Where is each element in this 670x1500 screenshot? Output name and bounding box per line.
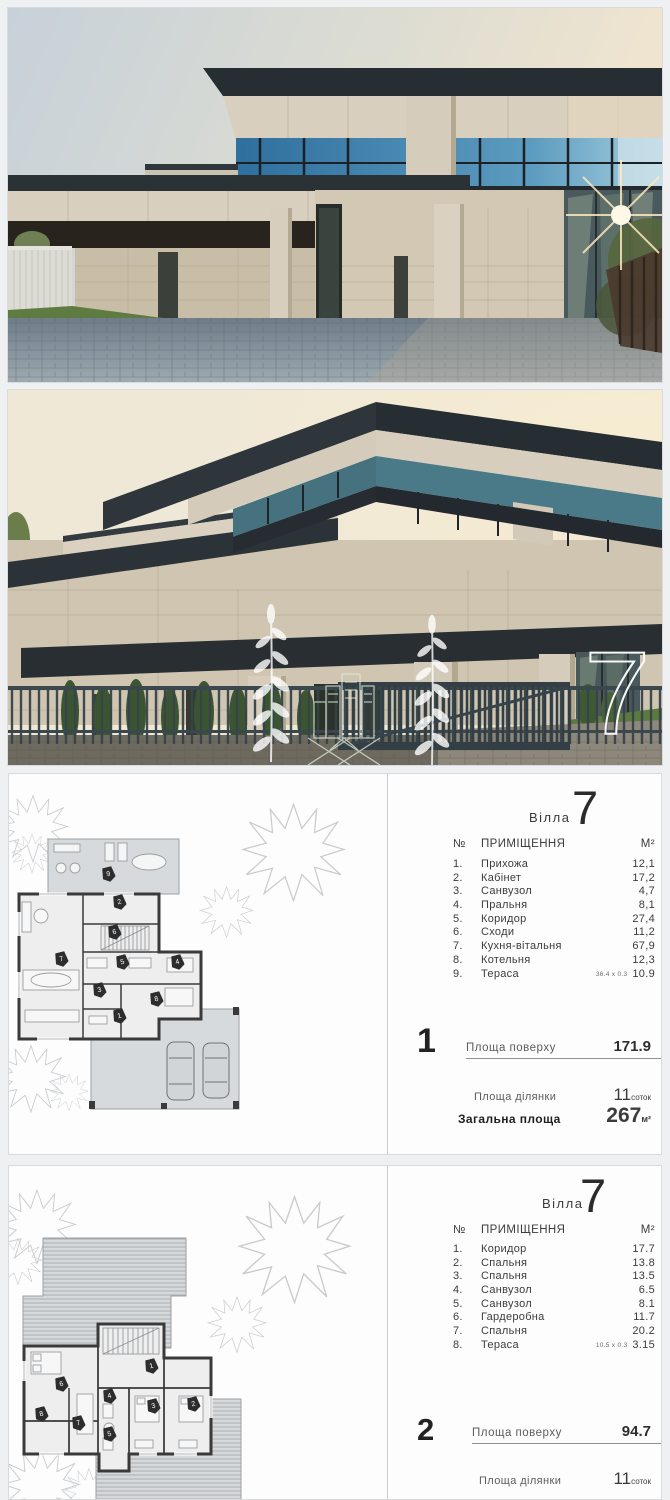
floor-area-label: Площа поверху bbox=[472, 1427, 562, 1439]
plot-area-value: 11соток bbox=[613, 1469, 651, 1489]
room-area: 8.1 bbox=[639, 1298, 655, 1312]
room-no: 6. bbox=[453, 926, 481, 940]
floor-area-label: Площа поверху bbox=[466, 1042, 556, 1054]
plot-area-label: Площа ділянки bbox=[474, 1091, 556, 1103]
room-no: 8. bbox=[453, 1339, 481, 1353]
room-name: Кабінет bbox=[481, 872, 632, 886]
room-area: 12,3 bbox=[632, 954, 655, 968]
table-row: 5.Коридор27,4 bbox=[453, 913, 655, 927]
room-name: Санвузол bbox=[481, 1298, 639, 1312]
villa-label: Вілла bbox=[542, 1196, 583, 1211]
room-name: Сходи bbox=[481, 926, 633, 940]
page-divider bbox=[387, 1166, 388, 1499]
listing-page: 7 bbox=[0, 0, 670, 1500]
total-unit: м² bbox=[641, 1114, 651, 1124]
room-name: Тераса bbox=[481, 1339, 596, 1353]
plot-unit: соток bbox=[631, 1093, 651, 1102]
col-no: № bbox=[453, 1224, 481, 1236]
room-table: 1.Прихожа12,1 2.Кабінет17,2 3.Санвузол4,… bbox=[453, 858, 655, 981]
table-row: 7.Спальня20.2 bbox=[453, 1325, 655, 1339]
total-number: 267 bbox=[606, 1104, 641, 1127]
plot-area-label: Площа ділянки bbox=[479, 1475, 561, 1487]
room-area: 13.5 bbox=[632, 1270, 655, 1284]
total-area-value: 267м² bbox=[606, 1104, 651, 1128]
room-area: 67,9 bbox=[632, 940, 655, 954]
villa-number: 7 bbox=[572, 784, 598, 831]
room-name: Кухня-вітальня bbox=[481, 940, 632, 954]
room-no: 6. bbox=[453, 1311, 481, 1325]
table-row: 9.Тераса36.4 х 0.310.9 bbox=[453, 968, 655, 982]
underline bbox=[472, 1443, 661, 1444]
room-table-header: № ПРИМІЩЕННЯ М² bbox=[453, 838, 655, 850]
terrace-dimensions-note: 10.5 х 0.3 bbox=[596, 1339, 628, 1353]
room-name: Спальня bbox=[481, 1257, 632, 1271]
table-row: 8.Тераса10.5 х 0.33.15 bbox=[453, 1339, 655, 1353]
room-no: 8. bbox=[453, 954, 481, 968]
room-area: 27,4 bbox=[632, 913, 655, 927]
floor-area-value: 94.7 bbox=[622, 1423, 651, 1440]
floor-plan-page-1[interactable]: 9 2 6 7 5 4 3 8 1 Вілла 7 № ПРИМІЩЕННЯ М… bbox=[8, 773, 662, 1155]
col-no: № bbox=[453, 838, 481, 850]
plot-area-value: 11соток bbox=[613, 1085, 651, 1105]
room-no: 7. bbox=[453, 1325, 481, 1339]
room-area: 4,7 bbox=[639, 885, 655, 899]
table-row: 1.Коридор17.7 bbox=[453, 1243, 655, 1257]
room-no: 1. bbox=[453, 1243, 481, 1257]
floor-plan-1-drawing bbox=[9, 774, 387, 1155]
col-area: М² bbox=[641, 1224, 655, 1236]
room-no: 3. bbox=[453, 885, 481, 899]
room-name: Санвузол bbox=[481, 1284, 639, 1298]
room-no: 2. bbox=[453, 872, 481, 886]
room-area: 11,2 bbox=[633, 926, 655, 940]
villa-label: Вілла bbox=[529, 810, 570, 825]
room-name: Котельня bbox=[481, 954, 632, 968]
table-row: 4.Санвузол6.5 bbox=[453, 1284, 655, 1298]
room-area: 13.8 bbox=[632, 1257, 655, 1271]
room-name: Коридор bbox=[481, 1243, 632, 1257]
table-row: 5.Санвузол8.1 bbox=[453, 1298, 655, 1312]
room-no: 4. bbox=[453, 899, 481, 913]
room-area: 17.7 bbox=[632, 1243, 655, 1257]
room-name: Пральня bbox=[481, 899, 639, 913]
exterior-photo-corner[interactable]: 7 bbox=[8, 390, 662, 765]
table-row: 6.Сходи11,2 bbox=[453, 926, 655, 940]
room-table: 1.Коридор17.7 2.Спальня13.8 3.Спальня13.… bbox=[453, 1243, 655, 1353]
room-no: 5. bbox=[453, 1298, 481, 1312]
room-area: 6.5 bbox=[639, 1284, 655, 1298]
room-name: Прихожа bbox=[481, 858, 632, 872]
villa-number: 7 bbox=[580, 1172, 606, 1219]
room-area: 8,1 bbox=[639, 899, 655, 913]
col-room: ПРИМІЩЕННЯ bbox=[481, 838, 641, 850]
room-area: 11.7 bbox=[633, 1311, 655, 1325]
table-row: 6.Гардеробна11.7 bbox=[453, 1311, 655, 1325]
floor-area-value: 171.9 bbox=[613, 1038, 651, 1055]
room-name: Спальня bbox=[481, 1270, 632, 1284]
terrace-dimensions-note: 36.4 х 0.3 bbox=[596, 968, 628, 982]
room-area: 3.15 bbox=[632, 1339, 655, 1353]
exterior-photo-corner-image: 7 bbox=[8, 390, 662, 765]
col-room: ПРИМІЩЕННЯ bbox=[481, 1224, 641, 1236]
exterior-photo-front-image bbox=[8, 8, 662, 382]
plot-number: 11 bbox=[613, 1469, 631, 1488]
table-row: 2.Спальня13.8 bbox=[453, 1257, 655, 1271]
plot-unit: соток bbox=[631, 1477, 651, 1486]
room-table-header: № ПРИМІЩЕННЯ М² bbox=[453, 1224, 655, 1236]
floor-number: 2 bbox=[417, 1414, 434, 1445]
table-row: 3.Санвузол4,7 bbox=[453, 885, 655, 899]
plot-number: 11 bbox=[613, 1085, 631, 1104]
page-divider bbox=[387, 774, 388, 1154]
underline bbox=[466, 1058, 661, 1059]
room-name: Санвузол bbox=[481, 885, 639, 899]
total-area-label: Загальна площа bbox=[458, 1112, 561, 1126]
room-name: Гардеробна bbox=[481, 1311, 633, 1325]
room-no: 1. bbox=[453, 858, 481, 872]
room-area: 12,1 bbox=[632, 858, 655, 872]
floor-plan-2-drawing bbox=[9, 1166, 387, 1500]
room-no: 4. bbox=[453, 1284, 481, 1298]
floor-plan-page-2[interactable]: 1 6 4 3 2 8 7 5 Вілла 7 № ПРИМІЩЕННЯ М² … bbox=[8, 1165, 662, 1500]
room-area: 20.2 bbox=[632, 1325, 655, 1339]
table-row: 2.Кабінет17,2 bbox=[453, 872, 655, 886]
room-name: Тераса bbox=[481, 968, 596, 982]
table-row: 7.Кухня-вітальня67,9 bbox=[453, 940, 655, 954]
room-name: Спальня bbox=[481, 1325, 632, 1339]
table-row: 8.Котельня12,3 bbox=[453, 954, 655, 968]
col-area: М² bbox=[641, 838, 655, 850]
table-row: 1.Прихожа12,1 bbox=[453, 858, 655, 872]
room-no: 2. bbox=[453, 1257, 481, 1271]
room-no: 9. bbox=[453, 968, 481, 982]
table-row: 3.Спальня13.5 bbox=[453, 1270, 655, 1284]
exterior-photo-front[interactable] bbox=[8, 8, 662, 382]
watermark-number: 7 bbox=[584, 628, 650, 760]
floor-number: 1 bbox=[417, 1024, 436, 1058]
room-no: 5. bbox=[453, 913, 481, 927]
room-no: 3. bbox=[453, 1270, 481, 1284]
room-name: Коридор bbox=[481, 913, 632, 927]
room-no: 7. bbox=[453, 940, 481, 954]
table-row: 4.Пральня8,1 bbox=[453, 899, 655, 913]
room-area: 17,2 bbox=[632, 872, 655, 886]
room-area: 10.9 bbox=[632, 968, 655, 982]
